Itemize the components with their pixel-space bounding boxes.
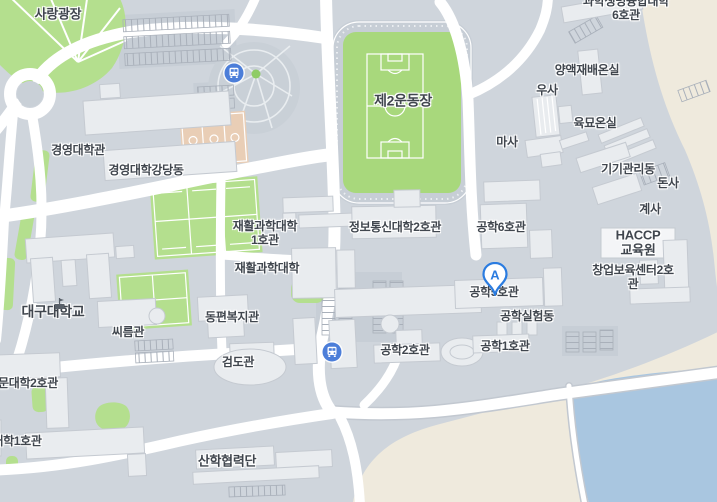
marker-letter: A bbox=[490, 268, 500, 283]
courtyard-green bbox=[95, 402, 130, 430]
map-canvas bbox=[0, 0, 717, 502]
campus-map[interactable]: 사랑광장과학생명융합대학6호관양액재배온실우사육묘온실마사기기관리동돈사계사경영… bbox=[0, 0, 717, 502]
sports-field bbox=[331, 20, 473, 205]
